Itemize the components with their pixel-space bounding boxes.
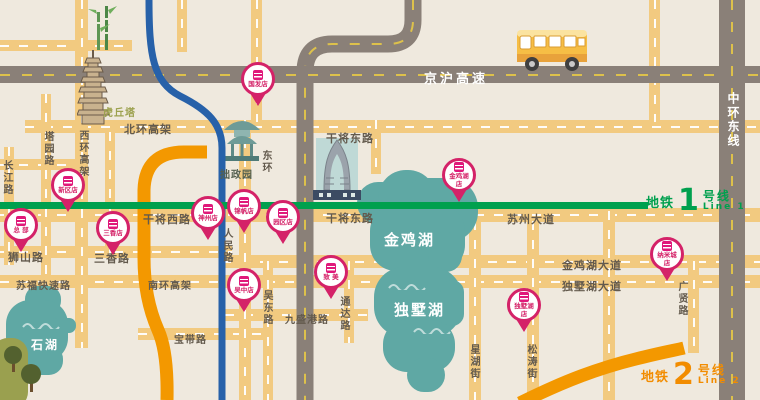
zhuozhengyuan-label: 拙政园	[220, 166, 253, 181]
pin-tail	[516, 319, 532, 332]
store-pin-shenzhou[interactable]: 神州店	[190, 196, 226, 240]
pin-head: 三香店	[96, 211, 130, 245]
road-label-guangxian: 广贤路	[674, 281, 689, 317]
metro-line2-west	[144, 152, 207, 400]
store-name: 国发店	[246, 81, 270, 88]
store-pin-wuzhong[interactable]: 吴中店	[226, 268, 262, 312]
line1-en: Line 1	[703, 203, 746, 212]
store-name: 神州店	[196, 215, 220, 222]
store-name: 新区店	[56, 187, 80, 194]
store-pin-sanxiang[interactable]: 三香店	[95, 211, 131, 255]
road-label-beihuan: 北环高架	[124, 121, 172, 137]
brand-logo-icon	[253, 70, 263, 80]
line1-number: 1	[678, 186, 699, 216]
line2-suffix: 号线	[698, 364, 741, 377]
store-pin-jinjihu[interactable]: 金鸡湖店	[441, 158, 477, 202]
pin-head: 园区店	[266, 200, 300, 234]
pin-head: 致 美	[314, 255, 348, 289]
store-pin-nanocity[interactable]: 纳米城店	[649, 237, 685, 281]
road-label-tongda: 通达路	[336, 296, 351, 332]
road-label-ganjiang-east-upper: 干将东路	[326, 130, 374, 146]
brand-logo-icon	[454, 162, 464, 172]
road-label-suzhou-ave: 苏州大道	[507, 211, 555, 227]
pin-tail	[105, 242, 121, 255]
road-label-sufu: 苏福快速路	[16, 277, 71, 292]
metro-line1-green	[0, 202, 648, 209]
brand-logo-icon	[662, 241, 672, 251]
pin-head: 神州店	[191, 196, 225, 230]
pin-head: 新区店	[51, 168, 85, 202]
store-pin-zhimei[interactable]: 致 美	[313, 255, 349, 299]
store-name: 三香店	[101, 230, 125, 237]
pin-tail	[13, 239, 29, 252]
road-label-baodai: 宝带路	[174, 331, 207, 346]
brand-logo-icon	[63, 176, 73, 186]
pin-tail	[659, 268, 675, 281]
road-label-ganjiang-east-lower: 干将东路	[326, 210, 374, 226]
brand-logo-icon	[326, 263, 336, 273]
donghuan-label: 东环	[258, 150, 273, 174]
pin-tail	[60, 199, 76, 212]
store-pin-xinqu[interactable]: 新区店	[50, 168, 86, 212]
map-canvas: 金鸡湖 独墅湖 石湖	[0, 0, 760, 400]
line1-cn: 地铁	[646, 192, 674, 211]
pin-tail	[451, 189, 467, 202]
pin-head: 纳米城店	[650, 237, 684, 271]
road-label-jinjihu-ave: 金鸡湖大道	[562, 257, 622, 273]
road-label-nanhuan: 南环高架	[148, 277, 192, 292]
line2-en: Line 2	[698, 377, 741, 386]
store-name: 总 部	[9, 227, 33, 234]
zhonghuan-east-label: 中环东线	[725, 92, 742, 148]
brand-logo-icon	[108, 219, 118, 229]
pin-tail	[236, 220, 252, 233]
brand-logo-icon	[519, 292, 529, 302]
brand-logo-icon	[239, 276, 249, 286]
pin-tail	[250, 93, 266, 106]
bus-icon	[516, 24, 590, 72]
metro-line2-label: 地铁 2 号线 Line 2	[641, 360, 741, 390]
line2-number: 2	[673, 360, 694, 390]
brand-logo-icon	[203, 204, 213, 214]
pin-tail	[200, 227, 216, 240]
store-pin-yuanqu[interactable]: 园区店	[265, 200, 301, 244]
pin-head: 总 部	[4, 208, 38, 242]
store-pin-headquarters[interactable]: 总 部	[3, 208, 39, 252]
store-name: 园区店	[271, 219, 295, 226]
brand-logo-icon	[239, 197, 249, 207]
brand-logo-icon	[16, 216, 26, 226]
pin-head: 独墅湖店	[507, 288, 541, 322]
store-name: 独墅湖店	[512, 303, 536, 318]
road-label-tayuan: 塔园路	[40, 131, 55, 167]
store-name: 金鸡湖店	[447, 173, 471, 188]
pin-tail	[323, 286, 339, 299]
store-pin-jinfan[interactable]: 锦帆店	[226, 189, 262, 233]
road-label-ganjiang-west: 干将西路	[143, 211, 191, 227]
pin-tail	[275, 231, 291, 244]
store-name: 纳米城店	[655, 252, 679, 267]
pin-head: 吴中店	[227, 268, 261, 302]
metro-line1-label: 地铁 1 号线 Line 1	[646, 186, 746, 216]
line2-cn: 地铁	[641, 366, 669, 385]
road-label-jiushenggang: 九盛港路	[285, 311, 329, 326]
brand-logo-icon	[278, 208, 288, 218]
huqiu-pagoda-label: 虎丘塔	[103, 104, 136, 119]
pin-head: 国发店	[241, 62, 275, 96]
store-name: 致 美	[319, 274, 343, 281]
road-label-songtao: 松涛街	[523, 344, 538, 380]
pin-head: 金鸡湖店	[442, 158, 476, 192]
line1-suffix: 号线	[703, 190, 746, 203]
jinghu-expressway-label: 京沪高速	[424, 68, 488, 87]
store-name: 吴中店	[232, 287, 256, 294]
road-label-changjiang: 长江路	[0, 160, 14, 196]
store-name: 锦帆店	[232, 208, 256, 215]
road-label-xinghu: 星湖街	[466, 344, 481, 380]
store-pin-guofa[interactable]: 国发店	[240, 62, 276, 106]
pin-tail	[236, 299, 252, 312]
road-label-dushuhu-ave: 独墅湖大道	[562, 278, 622, 294]
store-pin-dushuhu[interactable]: 独墅湖店	[506, 288, 542, 332]
pin-head: 锦帆店	[227, 189, 261, 223]
